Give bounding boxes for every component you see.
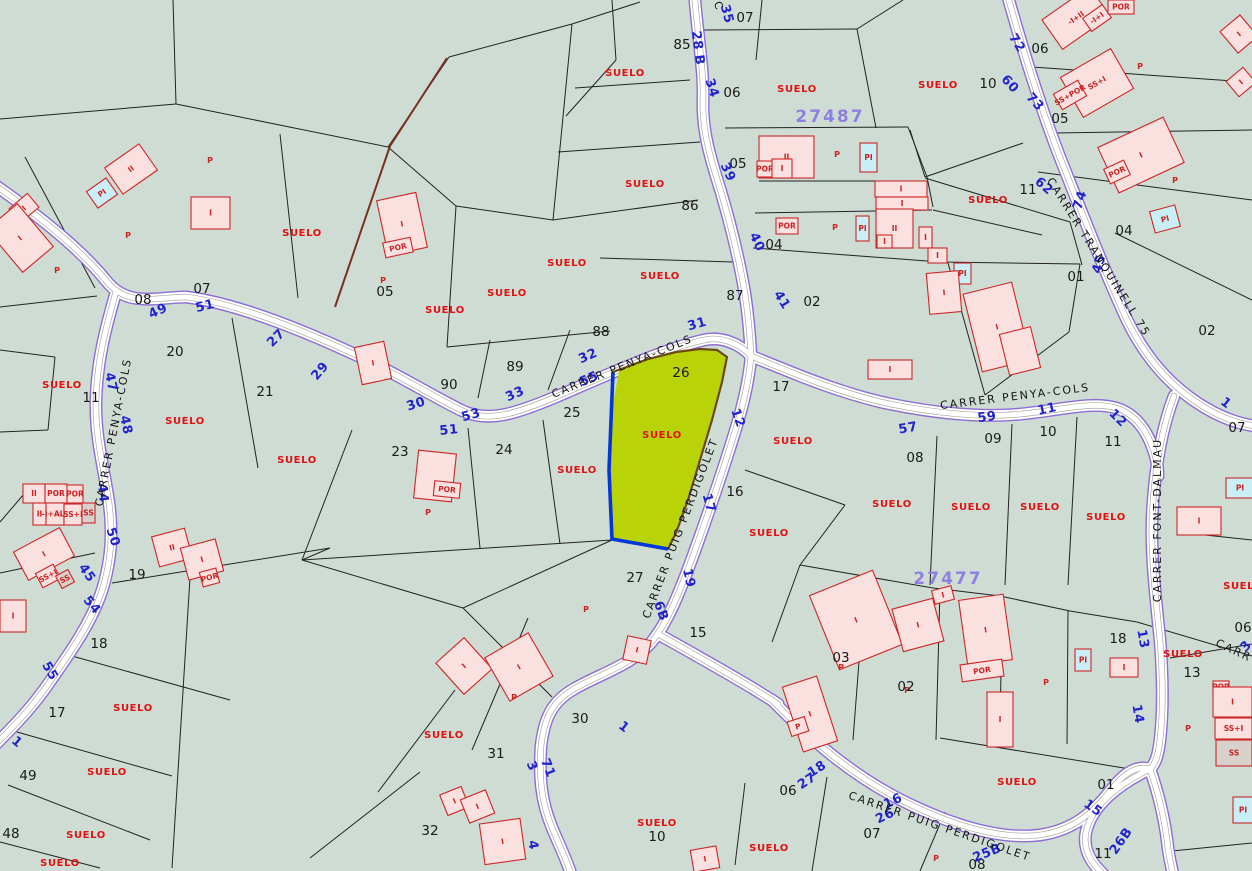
building-label: I: [936, 251, 939, 260]
building: I: [479, 818, 525, 864]
building: POR: [66, 485, 84, 503]
building-label: I: [781, 164, 784, 173]
building: I: [623, 636, 651, 664]
building: POR: [776, 218, 798, 234]
suelo-label: SUELO: [968, 195, 1008, 206]
parcel-number: 15: [689, 625, 706, 641]
parcel-number: 08: [134, 292, 151, 308]
suelo-label: SUELO: [872, 499, 912, 510]
suelo-label: SUELO: [777, 84, 817, 95]
parcel-number: 48: [2, 826, 19, 842]
suelo-label: SUELO: [625, 179, 665, 190]
parcel-number: 03: [832, 650, 849, 666]
parcel-number: 85: [673, 37, 690, 53]
p-mark-label: P: [1172, 176, 1178, 185]
parcel-number: 17: [772, 379, 789, 395]
building-label: I: [1123, 663, 1126, 672]
building: POR: [45, 484, 67, 503]
cadastral-map[interactable]: IIPIIIIIPORIPORIIPORPORII-I+ALTSS+ISSISS…: [0, 0, 1252, 871]
parcel-number: 05: [1051, 111, 1068, 127]
parcel-number: 07: [863, 826, 880, 842]
parcel-number: 49: [19, 768, 36, 784]
parcel-number: 04: [1115, 223, 1132, 239]
parcel-number: 02: [1198, 323, 1215, 339]
suelo-label: SUELO: [605, 68, 645, 79]
parcel-number: 27: [626, 570, 643, 586]
building-label: I: [924, 233, 927, 242]
suelo-label: SUELO: [642, 430, 682, 441]
parcel-number: 13: [1183, 665, 1200, 681]
suelo-label: SUELO: [749, 843, 789, 854]
building: I: [690, 846, 719, 871]
suelo-label: SUELO: [1163, 649, 1203, 660]
building-label: I: [1231, 698, 1234, 707]
building-label: I: [1198, 517, 1201, 526]
parcel-number: 08: [906, 450, 923, 466]
p-mark-label: P: [425, 508, 431, 517]
building-label: PI: [1239, 806, 1247, 815]
zone-id-label: 27487: [795, 107, 864, 127]
parcel-number: 02: [897, 679, 914, 695]
parcel-number: 90: [440, 377, 457, 393]
building: I: [191, 197, 230, 229]
suelo-label: SUELO: [749, 528, 789, 539]
suelo-label: SUELO: [277, 455, 317, 466]
parcel-number: 30: [571, 711, 588, 727]
parcel-number: 01: [1097, 777, 1114, 793]
building: PI: [1075, 649, 1091, 671]
parcel-number: 26: [672, 365, 689, 381]
suelo-label: SUELO: [425, 305, 465, 316]
p-mark-label: P: [933, 854, 939, 863]
building: I: [926, 271, 961, 315]
building-label: II: [31, 489, 37, 498]
suelo-label: SUELO: [547, 258, 587, 269]
building: II: [23, 484, 45, 503]
parcel-number: 06: [1031, 41, 1048, 57]
building: I: [868, 360, 912, 379]
p-mark-label: P: [834, 150, 840, 159]
building-label: I: [889, 365, 892, 374]
building-label: PI: [1236, 484, 1244, 493]
parcel-number: 01: [1067, 269, 1084, 285]
building-label: POR: [756, 165, 774, 174]
parcel-number: 21: [256, 384, 273, 400]
building-label: SS: [1229, 749, 1239, 758]
building-label: POR: [438, 484, 457, 495]
building: POR: [756, 161, 774, 177]
suelo-label: SUELO: [66, 830, 106, 841]
cadastral-map-viewport[interactable]: IIPIIIIIPORIPORIIPORPORII-I+ALTSS+ISSISS…: [0, 0, 1252, 871]
building-label: I: [209, 209, 212, 218]
building-label: PI: [858, 224, 866, 233]
building-label: I: [901, 199, 904, 208]
parcel-number: 10: [648, 829, 665, 845]
building: I: [1213, 687, 1252, 717]
building: I: [987, 692, 1013, 747]
parcel-number: 86: [681, 198, 698, 214]
building-label: II: [892, 224, 898, 233]
parcel-number: 06: [1234, 620, 1251, 636]
building: PI: [856, 216, 869, 241]
p-mark-label: P: [583, 605, 589, 614]
parcel-number: 02: [803, 294, 820, 310]
suelo-label: SUELO: [918, 80, 958, 91]
building: I: [959, 594, 1013, 666]
suelo-label: SUELO: [113, 703, 153, 714]
street-number: 51: [439, 422, 460, 439]
p-mark-label: P: [207, 156, 213, 165]
parcel-number: 31: [487, 746, 504, 762]
zone-id-label: 27477: [913, 569, 982, 589]
building-label: PI: [958, 269, 966, 278]
parcel-number: 04: [765, 237, 782, 253]
suelo-label: SUELO: [165, 416, 205, 427]
parcel-number: 24: [495, 442, 512, 458]
suelo-label: SUELO: [773, 436, 813, 447]
suelo-label: SUELO: [42, 380, 82, 391]
p-mark-label: P: [1185, 724, 1191, 733]
building-label: POR: [1112, 3, 1130, 12]
parcel-number: 06: [779, 783, 796, 799]
building: POR: [1108, 0, 1134, 14]
p-mark-label: P: [832, 223, 838, 232]
p-mark-label: P: [1043, 678, 1049, 687]
suelo-label: SUELO: [997, 777, 1037, 788]
parcel-number: 87: [726, 288, 743, 304]
parcel-number: 07: [193, 281, 210, 297]
building: I: [0, 600, 26, 632]
parcel-number: 11: [82, 390, 99, 406]
building-label: POR: [778, 222, 796, 231]
building-label: POR: [66, 490, 84, 499]
suelo-label: SUELO: [487, 288, 527, 299]
parcel-number: 25: [563, 405, 580, 421]
p-mark-label: P: [54, 266, 60, 275]
building-label: SS+I: [1224, 724, 1244, 733]
p-mark-label: P: [125, 231, 131, 240]
building: SS+I: [1215, 718, 1252, 739]
suelo-label: SUELO: [1223, 581, 1252, 592]
parcel-number: 06: [723, 85, 740, 101]
building: PI: [1233, 797, 1252, 823]
street-name-label: CARRER FONT-DALMAU: [1151, 438, 1164, 602]
building-label: I: [12, 612, 15, 621]
parcel-number: 09: [984, 431, 1001, 447]
street-number: 59: [977, 409, 998, 427]
building: I: [772, 159, 792, 178]
building-label: PI: [1079, 656, 1087, 665]
suelo-label: SUELO: [282, 228, 322, 239]
building-label: SS: [83, 509, 93, 518]
building: PI: [1226, 478, 1252, 498]
building-label: SS+I: [63, 510, 83, 519]
suelo-label: SUELO: [637, 818, 677, 829]
parcel-number: 89: [506, 359, 523, 375]
suelo-label: SUELO: [87, 767, 127, 778]
parcel-number: 05: [376, 284, 393, 300]
parcel-number: 23: [391, 444, 408, 460]
building: I: [877, 235, 892, 248]
suelo-label: SUELO: [40, 858, 80, 869]
parcel-number: 88: [592, 324, 609, 340]
p-mark-label: P: [511, 693, 517, 702]
suelo-label: SUELO: [1086, 512, 1126, 523]
building: I: [1177, 507, 1221, 535]
suelo-label: SUELO: [557, 465, 597, 476]
building: PI: [860, 143, 877, 172]
building: POR: [433, 481, 460, 499]
building: I: [875, 181, 927, 197]
building: SS: [1216, 740, 1252, 766]
building: I: [919, 227, 932, 248]
building-label: I: [999, 715, 1002, 724]
parcel-number: 18: [90, 636, 107, 652]
parcel-number: 07: [1228, 420, 1245, 436]
parcel-number: 20: [166, 344, 183, 360]
p-mark-label: P: [1137, 62, 1143, 71]
parcel-number: 11: [1104, 434, 1121, 450]
building-label: PI: [864, 153, 872, 162]
parcel-number: 32: [421, 823, 438, 839]
suelo-label: SUELO: [640, 271, 680, 282]
parcel-number: 17: [48, 705, 65, 721]
parcel-number: 10: [1039, 424, 1056, 440]
building: I: [928, 248, 947, 263]
building-label: I: [900, 185, 903, 194]
suelo-label: SUELO: [1020, 502, 1060, 513]
building: I: [1110, 658, 1138, 677]
parcel-number: 10: [979, 76, 996, 92]
parcel-number: 16: [726, 484, 743, 500]
building: I: [876, 197, 928, 210]
suelo-label: SUELO: [951, 502, 991, 513]
building-label: POR: [47, 489, 65, 498]
parcel-number: 19: [128, 567, 145, 583]
building: SS+I: [63, 504, 83, 525]
suelo-label: SUELO: [424, 730, 464, 741]
parcel-number: 18: [1109, 631, 1126, 647]
parcel-number: 07: [736, 10, 753, 26]
building-label: I: [883, 237, 886, 246]
